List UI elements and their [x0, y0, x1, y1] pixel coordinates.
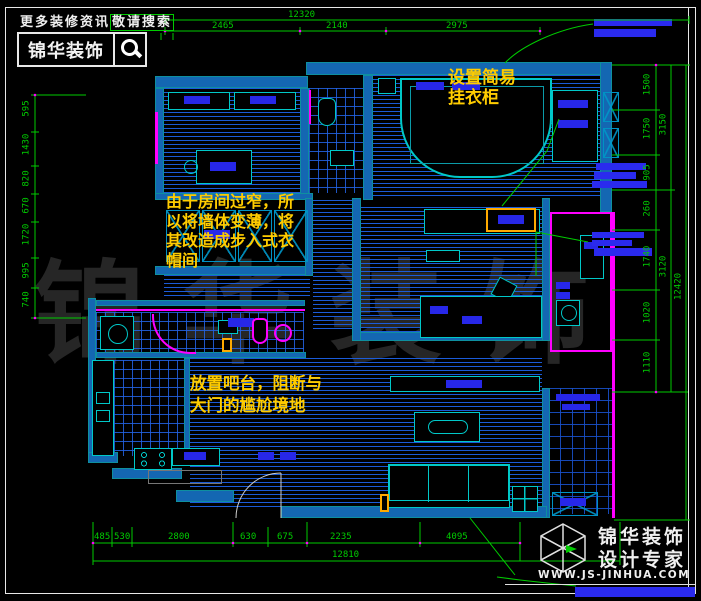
dim-bottom-seg: 2800	[168, 533, 190, 542]
note-line: 大门的尴尬境地	[190, 396, 306, 415]
tagline-part2-highlight: 敬请搜索	[110, 14, 174, 31]
dim-right-seg: 1500	[644, 70, 653, 100]
header-tagline: 更多装修资讯敬请搜索	[20, 11, 174, 30]
dim-left-seg: 595	[23, 94, 32, 124]
note-line: 挂衣柜	[448, 88, 499, 108]
note-clothes-rack: 设置简易挂衣柜	[448, 68, 516, 108]
dim-left-seg: 670	[23, 191, 32, 221]
dim-left-seg: 820	[23, 164, 32, 194]
search-handle	[134, 50, 142, 58]
dim-top-seg: 2140	[326, 22, 348, 31]
dim-left-seg: 1430	[23, 130, 32, 160]
note-walkin-wardrobe: 由于房间过窄，所以将墙体变薄，将其改造成步入式衣帽间	[166, 192, 294, 270]
dim-left-seg: 740	[23, 285, 32, 315]
dim-top-seg: 2465	[212, 22, 234, 31]
logo-brand-line2: 设计专家	[598, 545, 686, 572]
dim-right-seg: 905	[644, 158, 653, 188]
logo-url: WWW.JS-JINHUA.COM	[538, 569, 690, 581]
dim-bottom-seg: 675	[277, 533, 293, 542]
tagline-part1: 更多装修资讯	[20, 15, 110, 30]
cad-floorplan-image: 锦华装饰 更多装修资讯敬请搜索 锦华装饰	[0, 0, 701, 601]
logo-divider-line	[505, 584, 695, 585]
dimension-lines-overlay	[0, 0, 701, 601]
dim-top-seg: 2975	[446, 22, 468, 31]
dim-right-overall: 12420	[675, 272, 684, 302]
dim-left-seg: 1720	[23, 220, 32, 250]
brand-search-box: 锦华装饰	[17, 32, 147, 67]
dim-bottom-seg: 630	[240, 533, 256, 542]
brand-name: 锦华装饰	[19, 37, 113, 63]
dim-bottom-seg: 530	[114, 533, 130, 542]
search-icon	[115, 34, 145, 65]
dim-top-overall: 12320	[288, 11, 315, 20]
dim-bottom-seg: 485	[94, 533, 110, 542]
dim-right-seg: 1750	[644, 114, 653, 144]
dim-right-mid: 3150	[660, 110, 669, 140]
dim-right-mid: 3120	[660, 252, 669, 282]
note-line: 以将墙体变薄，将	[166, 212, 294, 231]
dim-right-seg: 1740	[644, 242, 653, 272]
dim-right-seg: 1110	[644, 348, 653, 378]
note-line: 帽间	[166, 251, 198, 270]
dim-bottom-overall: 12810	[332, 551, 359, 560]
dim-right-seg: 260	[644, 194, 653, 224]
note-line: 设置简易	[448, 68, 516, 88]
dim-bottom-seg: 2235	[330, 533, 352, 542]
note-bar-counter: 放置吧台，阻断与大门的尴尬境地	[190, 373, 322, 417]
dim-right-seg: 1020	[644, 298, 653, 328]
note-line: 其改造成步入式衣	[166, 231, 294, 250]
note-line: 放置吧台，阻断与	[190, 374, 322, 393]
dim-bottom-seg: 4095	[446, 533, 468, 542]
note-line: 由于房间过窄，所	[166, 192, 294, 211]
dim-left-seg: 995	[23, 256, 32, 286]
logo-cube-icon	[536, 521, 590, 575]
